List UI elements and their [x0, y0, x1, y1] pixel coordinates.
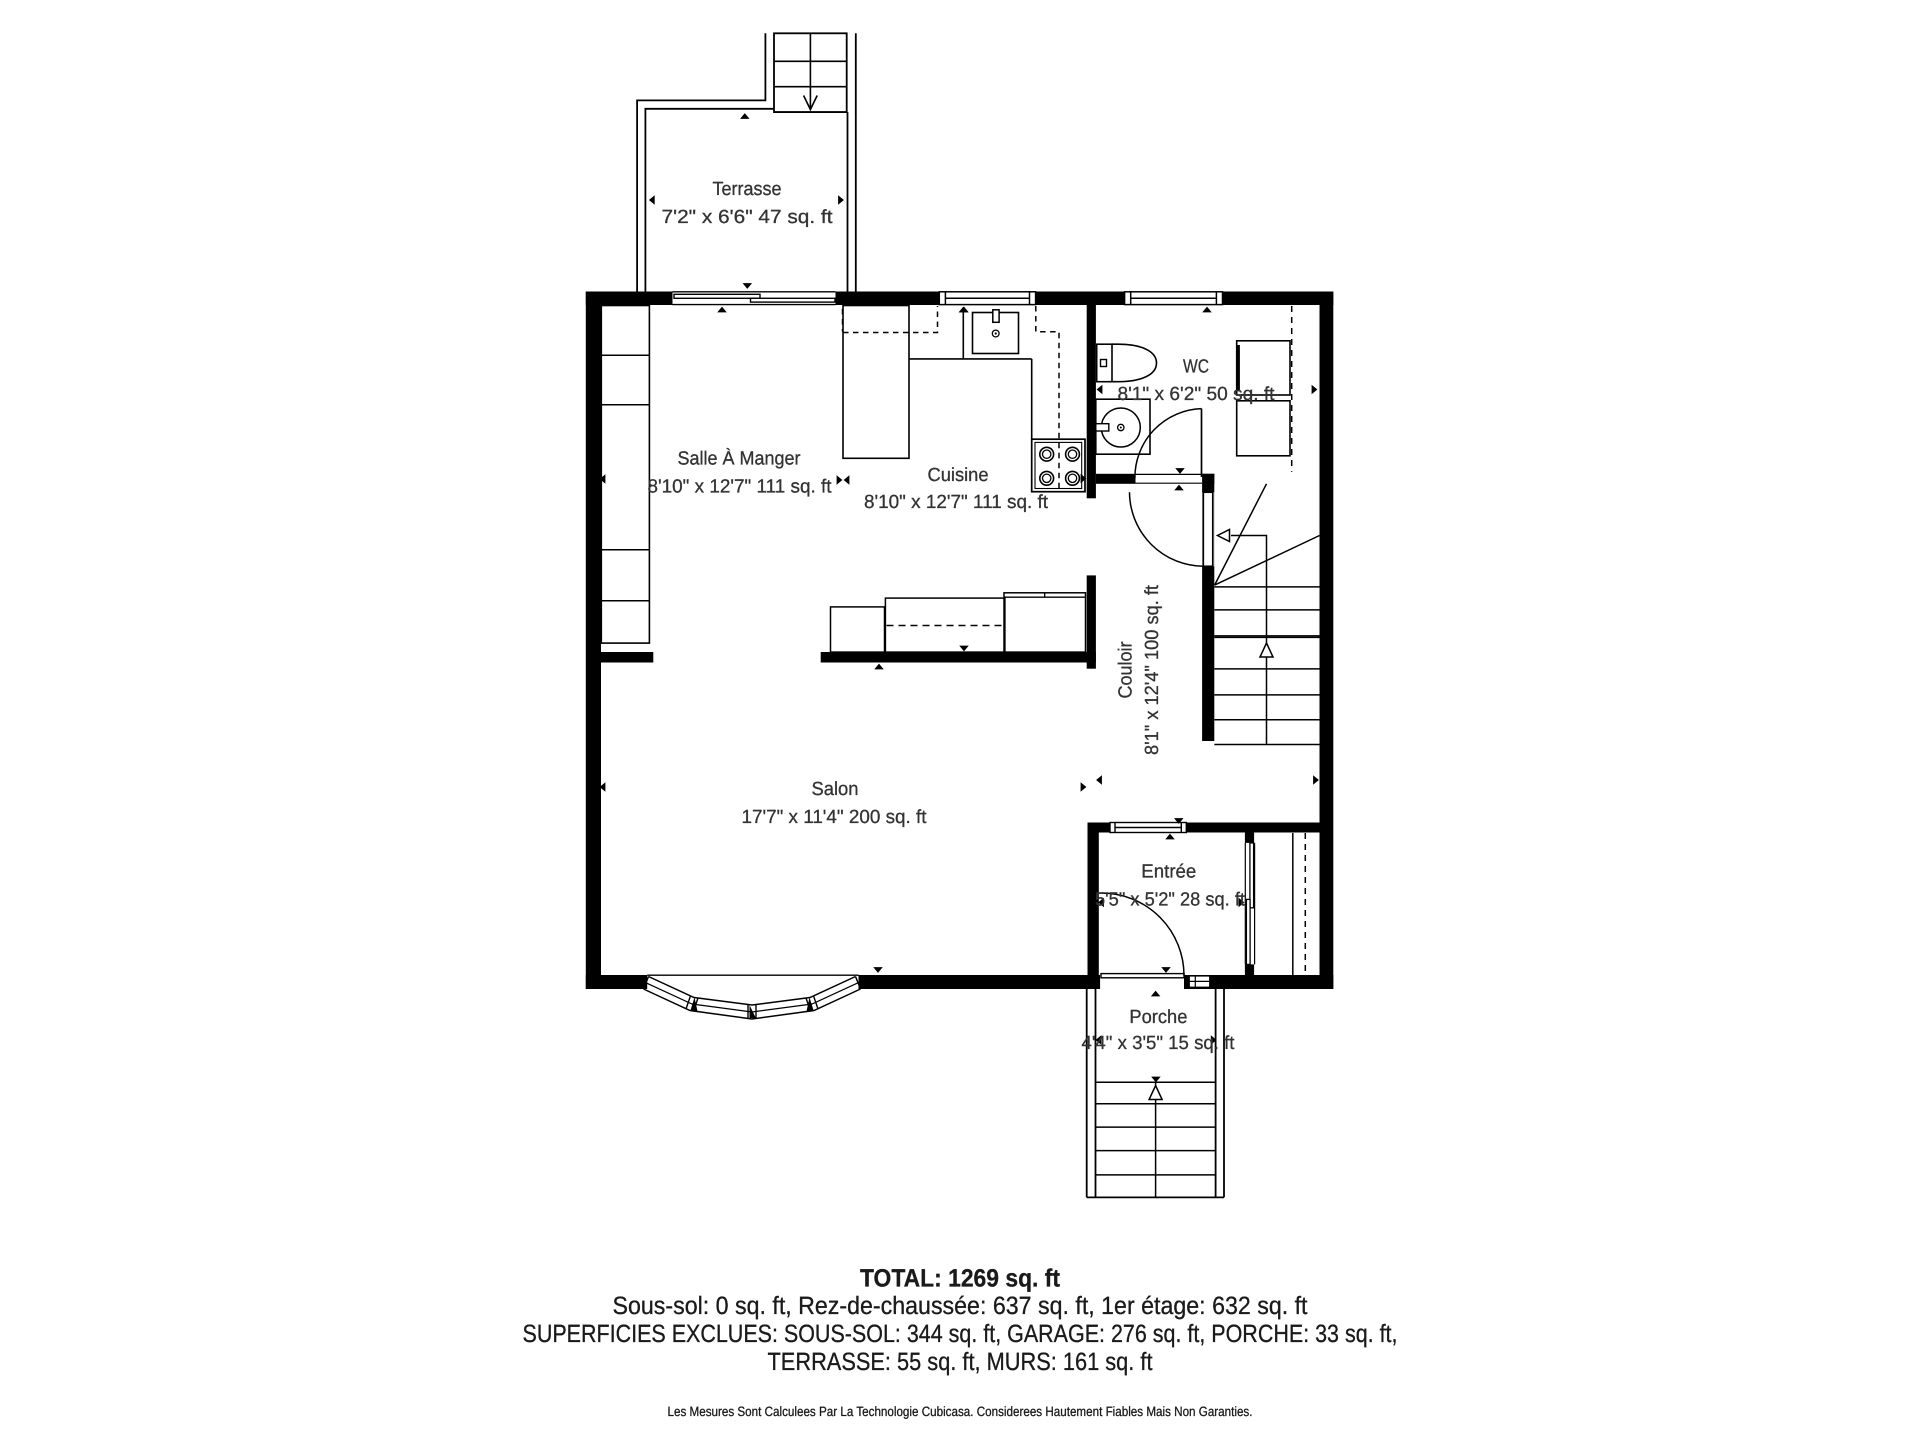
svg-text:Terrasse: Terrasse — [713, 179, 782, 200]
svg-text:WC: WC — [1183, 357, 1209, 378]
svg-text:5'5" x 5'2" 28 sq. ft: 5'5" x 5'2" 28 sq. ft — [1095, 890, 1246, 911]
svg-text:Entrée: Entrée — [1141, 862, 1196, 883]
svg-text:4'4" x 3'5" 15 sq. ft: 4'4" x 3'5" 15 sq. ft — [1082, 1033, 1236, 1054]
svg-text:TERRASSE: 55 sq. ft, MURS: 161: TERRASSE: 55 sq. ft, MURS: 161 sq. ft — [768, 1348, 1153, 1376]
svg-text:Salle À Manger: Salle À Manger — [678, 448, 802, 470]
svg-text:17'7" x 11'4" 200 sq. ft: 17'7" x 11'4" 200 sq. ft — [742, 807, 928, 828]
svg-text:8'1" x 6'2" 50 sq. ft: 8'1" x 6'2" 50 sq. ft — [1118, 384, 1276, 405]
svg-text:Couloir: Couloir — [1116, 641, 1137, 699]
svg-text:Porche: Porche — [1129, 1007, 1187, 1028]
svg-text:8'10" x 12'7" 111 sq. ft: 8'10" x 12'7" 111 sq. ft — [648, 477, 833, 498]
svg-text:TOTAL: 1269 sq. ft: TOTAL: 1269 sq. ft — [860, 1265, 1061, 1293]
svg-text:8'10" x 12'7" 111 sq. ft: 8'10" x 12'7" 111 sq. ft — [864, 492, 1049, 513]
svg-text:Les Mesures Sont Calculees Par: Les Mesures Sont Calculees Par La Techno… — [668, 1404, 1253, 1419]
svg-text:Cuisine: Cuisine — [928, 465, 989, 486]
svg-text:SUPERFICIES EXCLUES: SOUS-SOL:: SUPERFICIES EXCLUES: SOUS-SOL: 344 sq. f… — [523, 1320, 1398, 1348]
svg-text:8'1" x 12'4" 100 sq. ft: 8'1" x 12'4" 100 sq. ft — [1142, 584, 1163, 755]
svg-text:Salon: Salon — [812, 779, 859, 800]
svg-text:Sous-sol: 0 sq. ft, Rez-de-cha: Sous-sol: 0 sq. ft, Rez-de-chaussée: 637… — [613, 1292, 1308, 1320]
svg-text:7'2" x 6'6" 47 sq. ft: 7'2" x 6'6" 47 sq. ft — [662, 207, 834, 228]
